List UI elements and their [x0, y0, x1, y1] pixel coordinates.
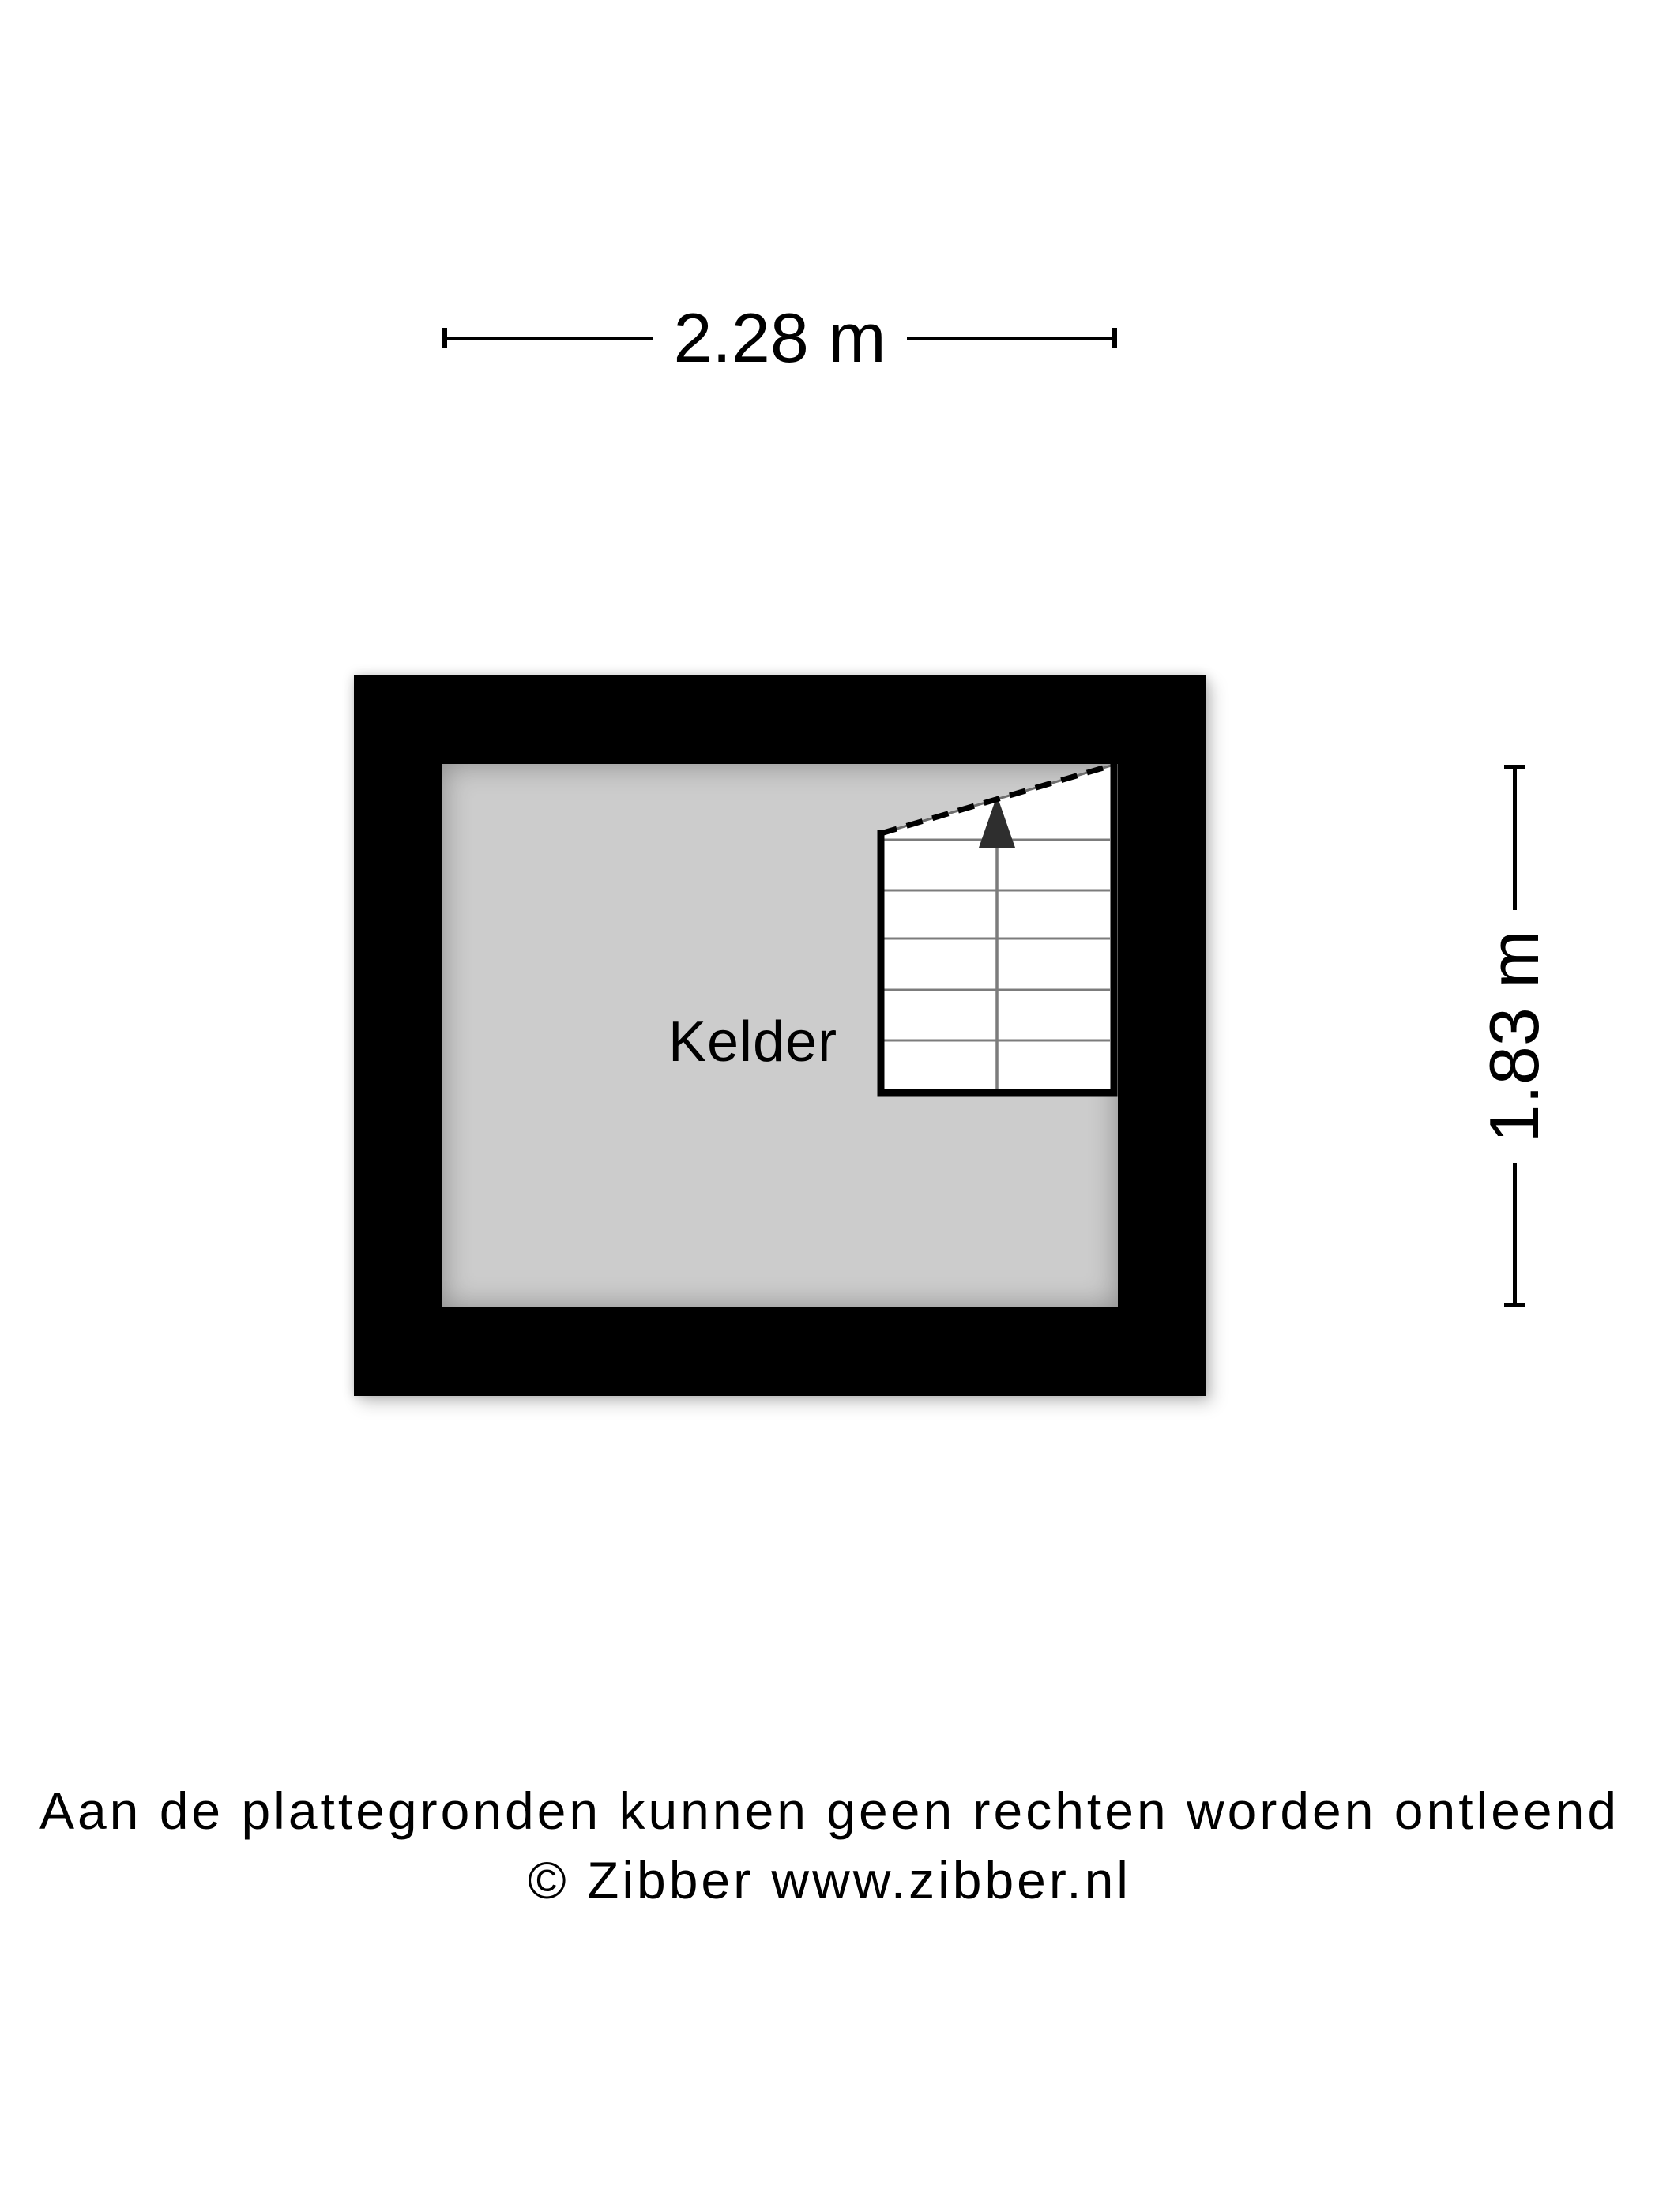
- staircase: [354, 675, 1206, 1396]
- height-dimension-label: 1.83 m: [1474, 930, 1555, 1142]
- height-dimension: 1.83 m: [1477, 765, 1552, 1307]
- copyright-line: © Zibber www.zibber.nl: [0, 1845, 1659, 1915]
- disclaimer-line-1: Aan de plattegronden kunnen geen rechten…: [0, 1776, 1659, 1845]
- dimension-line-segment: [447, 337, 653, 340]
- width-dimension-label: 2.28 m: [653, 298, 906, 378]
- floorplan: Kelder: [354, 675, 1206, 1396]
- dimension-tick-bottom: [1504, 1303, 1525, 1307]
- dimension-line-segment: [1513, 769, 1517, 910]
- floorplan-page: 2.28 m 1.83 m Kelder: [0, 0, 1659, 2212]
- dimension-line-segment: [1513, 1163, 1517, 1303]
- dimension-line-segment: [907, 337, 1112, 340]
- disclaimer: Aan de plattegronden kunnen geen rechten…: [0, 1776, 1659, 1915]
- dimension-tick-right: [1112, 328, 1117, 348]
- height-dimension-label-holder: 1.83 m: [1477, 910, 1552, 1163]
- width-dimension: 2.28 m: [442, 299, 1117, 378]
